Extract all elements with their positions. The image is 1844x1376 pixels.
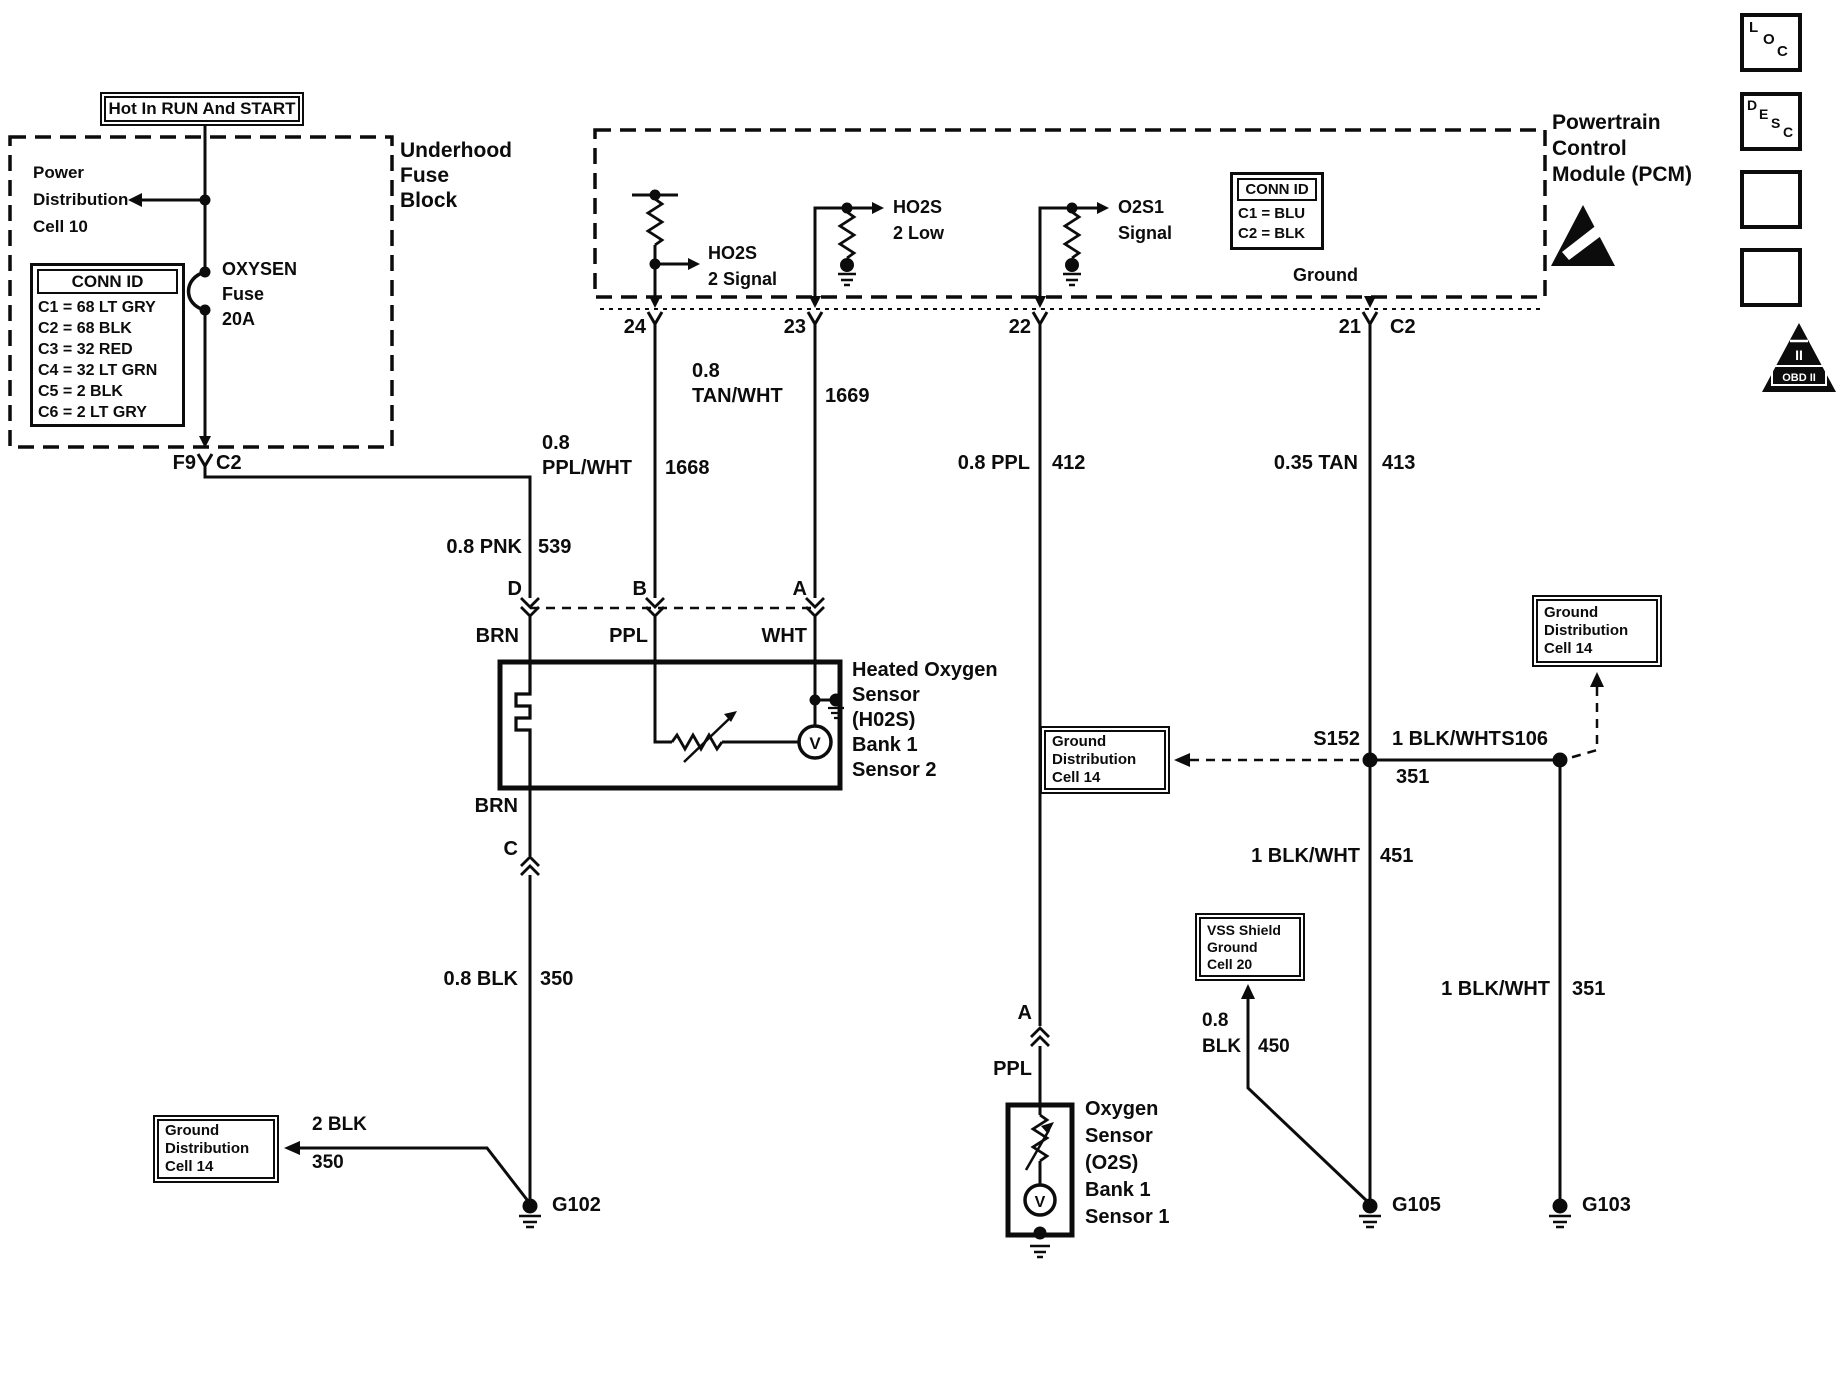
pcm-title-line: Powertrain: [1552, 112, 1661, 134]
vss-shield-ground-ref: VSS Shield Ground Cell 20: [1195, 913, 1305, 981]
down-arrow-icon: [1034, 296, 1046, 308]
o2s1-signal-line: O2S1: [1118, 196, 1164, 218]
conn-id-row: C2 = BLK: [1238, 224, 1316, 244]
o2s-name-line: Sensor: [1085, 1123, 1153, 1150]
ref-box-line: Distribution: [1052, 751, 1158, 769]
pin-22-label: 22: [969, 316, 1031, 338]
fuse-pin-label: F9: [156, 452, 196, 474]
power-dist-line: Distribution: [33, 189, 128, 211]
harness-connector-dba: [521, 324, 824, 662]
obd2-icon[interactable]: II OBD II: [1762, 323, 1836, 392]
ref-box-line: Distribution: [1544, 622, 1650, 640]
pcm-ho2s-2-low-circuit: [808, 202, 884, 324]
connector-y-icon: [648, 312, 662, 324]
left-arrow-icon: [284, 1141, 300, 1155]
power-dist-line: Cell 10: [33, 216, 88, 238]
conn-id-row: C1 = 68 LT GRY: [38, 297, 177, 318]
ref-box-line: Cell 14: [165, 1158, 267, 1176]
ground-g103-label: G103: [1582, 1194, 1631, 1216]
wire-ppl-label: PPL: [590, 625, 648, 647]
ground-dist-right-link: [1566, 672, 1604, 759]
splice-s152-dot: [1364, 754, 1376, 766]
ref-box-line: Ground: [165, 1122, 267, 1140]
ground-dot-icon: [1035, 1228, 1045, 1238]
power-dist-line: Power: [33, 162, 84, 184]
wire-412-number: 412: [1052, 452, 1085, 474]
pcm-pin21-exit: [1363, 296, 1377, 1203]
o2s1-signal-line: Signal: [1118, 222, 1172, 244]
fuse-conn-label: C2: [216, 452, 242, 474]
ho2s-2-signal-line: 2 Signal: [708, 268, 777, 290]
pin-24-label: 24: [584, 316, 646, 338]
pcm-o2s1-signal-circuit: [1033, 202, 1109, 324]
ref-box-line: Cell 14: [1544, 640, 1650, 658]
variable-resistor-icon: [672, 735, 722, 749]
down-arrow-icon: [1364, 296, 1376, 308]
conn-id-row: C5 = 2 BLK: [38, 381, 177, 402]
fuse-icon: [189, 272, 206, 310]
desc-letter: E: [1759, 106, 1768, 122]
esd-warning-icon: [1551, 205, 1615, 266]
ref-box-line: Distribution: [165, 1140, 267, 1158]
wire-351v-number: 351: [1572, 978, 1605, 1000]
underhood-conn-id-table: CONN ID C1 = 68 LT GRY C2 = 68 BLK C3 = …: [30, 263, 185, 427]
o2s-ppl-label: PPL: [966, 1058, 1032, 1080]
loc-button[interactable]: L O C: [1740, 13, 1802, 72]
down-arrow-icon: [649, 296, 661, 308]
wire-1668-size: 0.8: [542, 432, 570, 454]
resistor-icon: [648, 199, 662, 245]
ground-g105-label: G105: [1392, 1194, 1441, 1216]
up-arrow-icon: [1241, 984, 1255, 999]
ref-box-line: VSS Shield: [1207, 922, 1293, 939]
wire-450-number: 450: [1258, 1036, 1290, 1058]
conn-cavity-b-label: B: [609, 578, 647, 600]
wire-350-number: 350: [540, 968, 573, 990]
wire-351v-color: 1 BLK/WHT: [1420, 978, 1550, 1000]
chassis-ground-icon: [519, 1216, 541, 1227]
ho2s-name-line: Bank 1: [852, 733, 918, 758]
wire-412-color: 0.8 PPL: [920, 452, 1030, 474]
pcm-conn-id-table: CONN ID C1 = BLU C2 = BLK: [1230, 172, 1324, 250]
obd2-roman-label: II: [1795, 347, 1803, 363]
o2s-name-line: Sensor 1: [1085, 1204, 1169, 1231]
connector-y-icon: [1363, 312, 1377, 324]
splice-s152-label: S152: [1296, 728, 1360, 750]
pcm-title-line: Module (PCM): [1552, 164, 1692, 186]
ref-box-line: Ground: [1052, 733, 1158, 751]
wire-1669-number: 1669: [825, 385, 870, 407]
pin-23-label: 23: [744, 316, 806, 338]
chassis-ground-icon: [838, 274, 856, 285]
wire-413-color: 0.35 TAN: [1240, 452, 1358, 474]
wire-350-color: 0.8 BLK: [404, 968, 518, 990]
ground-distribution-ref-right: Ground Distribution Cell 14: [1532, 595, 1662, 667]
o2s-signal-wire: [1031, 324, 1049, 1115]
ground-dist-mid-link: [1174, 753, 1364, 767]
wire-351h-number: 351: [1396, 766, 1429, 788]
wire-wht-label: WHT: [735, 625, 807, 647]
resistor-icon: [840, 212, 854, 258]
power-feed-wire: [128, 126, 530, 598]
next-page-button[interactable]: [1740, 170, 1802, 229]
ref-box-line: Ground: [1207, 939, 1293, 956]
wire-1669-color: TAN/WHT: [692, 385, 783, 407]
underhood-label-line: Fuse: [400, 163, 449, 188]
pin-21-label: 21: [1299, 316, 1361, 338]
wiring-diagram-page: V V: [0, 0, 1844, 1376]
conn-id-title: CONN ID: [1237, 178, 1317, 201]
pcm-title-line: Control: [1552, 138, 1627, 160]
conn-id-row: C3 = 32 RED: [38, 339, 177, 360]
right-arrow-icon: [1097, 202, 1109, 214]
chassis-ground-icon: [1549, 1216, 1571, 1227]
pin-21-conn-label: C2: [1390, 316, 1416, 338]
wire-brn-lower-label: BRN: [458, 795, 518, 817]
ho2s-2-low-line: HO2S: [893, 196, 942, 218]
conn-id-row: C6 = 2 LT GRY: [38, 402, 177, 423]
wire-351h-color: 1 BLK/WHT: [1392, 728, 1501, 750]
wire-2blk-number: 350: [312, 1152, 344, 1174]
ground-distribution-ref-bottom-left: Ground Distribution Cell 14: [153, 1115, 279, 1183]
ho2s-2-signal-line: HO2S: [708, 242, 757, 264]
connector-y-icon: [1033, 312, 1047, 324]
fuse-label-line: Fuse: [222, 283, 264, 305]
v-symbol-label: V: [809, 734, 821, 753]
ground-distribution-ref-mid: Ground Distribution Cell 14: [1040, 726, 1170, 794]
connector-y-icon: [808, 312, 822, 324]
loc-letter: C: [1777, 43, 1788, 60]
ref-box-line: Ground: [1544, 604, 1650, 622]
v-symbol-label: V: [1035, 1194, 1046, 1211]
wire-1669-size: 0.8: [692, 360, 720, 382]
conn-id-row: C2 = 68 BLK: [38, 318, 177, 339]
ground-dot-icon: [524, 1200, 536, 1212]
wire-2blk-color: 2 BLK: [312, 1114, 367, 1136]
right-arrow-icon: [688, 258, 700, 270]
left-arrow-icon: [128, 193, 142, 207]
down-arrow-icon: [809, 296, 821, 308]
wire-451-color: 1 BLK/WHT: [1230, 845, 1360, 867]
left-arrow-icon: [1174, 753, 1190, 767]
conn-id-row: C1 = BLU: [1238, 204, 1316, 224]
ground-dot-icon: [1554, 1200, 1566, 1212]
wire-brn-label: BRN: [455, 625, 519, 647]
o2s-cavity-a-label: A: [996, 1002, 1032, 1024]
resistor-icon: [1065, 212, 1079, 258]
ho2s-2-low-line: 2 Low: [893, 222, 944, 244]
ho2s-name-line: Sensor 2: [852, 758, 936, 783]
conn-cavity-c-label: C: [490, 838, 518, 860]
o2s-name-line: (O2S): [1085, 1150, 1138, 1177]
ho2s-sensor-symbol: V: [500, 662, 844, 788]
underhood-label-line: Underhood: [400, 138, 512, 163]
ground-g102-label: G102: [552, 1194, 601, 1216]
vss-shield-link: [1241, 984, 1368, 1202]
o2s-sensor-symbol: V: [1008, 1105, 1072, 1257]
ho2s-name-line: Sensor: [852, 683, 920, 708]
ground-dot-icon: [1067, 260, 1078, 271]
conn-id-title: CONN ID: [37, 269, 178, 294]
chassis-ground-icon: [1030, 1246, 1050, 1257]
connector-chevron-icon: [1031, 1028, 1049, 1046]
connector-y-icon: [198, 454, 212, 466]
obd2-text-label: OBD II: [1782, 372, 1816, 384]
conn-cavity-d-label: D: [484, 578, 522, 600]
conn-cavity-a-label: A: [769, 578, 807, 600]
chassis-ground-icon: [1359, 1216, 1381, 1227]
ground-dot-icon: [842, 260, 853, 271]
hot-in-run-banner: Hot In RUN And START: [100, 92, 304, 126]
ho2s-name-line: Heated Oxygen: [852, 658, 998, 683]
heater-element-icon: [516, 662, 530, 788]
up-arrow-icon: [1590, 672, 1604, 687]
wire-539-color: 0.8 PNK: [404, 536, 522, 558]
o2s-name-line: Oxygen: [1085, 1096, 1158, 1123]
connector-chevron-icon: [521, 857, 539, 875]
desc-letter: D: [1747, 97, 1757, 113]
fuse-label-line: 20A: [222, 308, 255, 330]
ground-dot-icon: [831, 695, 841, 705]
wire-1668-color: PPL/WHT: [542, 457, 632, 479]
wire-539-number: 539: [538, 536, 571, 558]
ref-box-line: Cell 14: [1052, 769, 1158, 787]
wire-450-size: 0.8: [1202, 1010, 1228, 1032]
conn-id-row: C4 = 32 LT GRN: [38, 360, 177, 381]
desc-letter: S: [1771, 115, 1780, 131]
wire-451-number: 451: [1380, 845, 1413, 867]
wire-450-color: BLK: [1202, 1036, 1241, 1058]
splice-s106-label: S106: [1488, 728, 1548, 750]
pcm-ground-label: Ground: [1250, 264, 1358, 286]
loc-letter: L: [1749, 19, 1758, 36]
wire-1668-number: 1668: [665, 457, 710, 479]
o2s-name-line: Bank 1: [1085, 1177, 1151, 1204]
loc-letter: O: [1763, 31, 1775, 48]
wire-413-number: 413: [1382, 452, 1415, 474]
ho2s-name-line: (H02S): [852, 708, 915, 733]
chassis-ground-icon: [1063, 274, 1081, 285]
ref-box-line: Cell 20: [1207, 956, 1293, 973]
prev-page-button[interactable]: [1740, 248, 1802, 307]
pcm-ho2s-2-signal-circuit: [632, 191, 700, 324]
desc-letter: C: [1783, 124, 1793, 140]
underhood-label-line: Block: [400, 188, 457, 213]
desc-button[interactable]: D E S C: [1740, 92, 1802, 151]
fuse-label-line: OXYSEN: [222, 258, 297, 280]
right-arrow-icon: [872, 202, 884, 214]
